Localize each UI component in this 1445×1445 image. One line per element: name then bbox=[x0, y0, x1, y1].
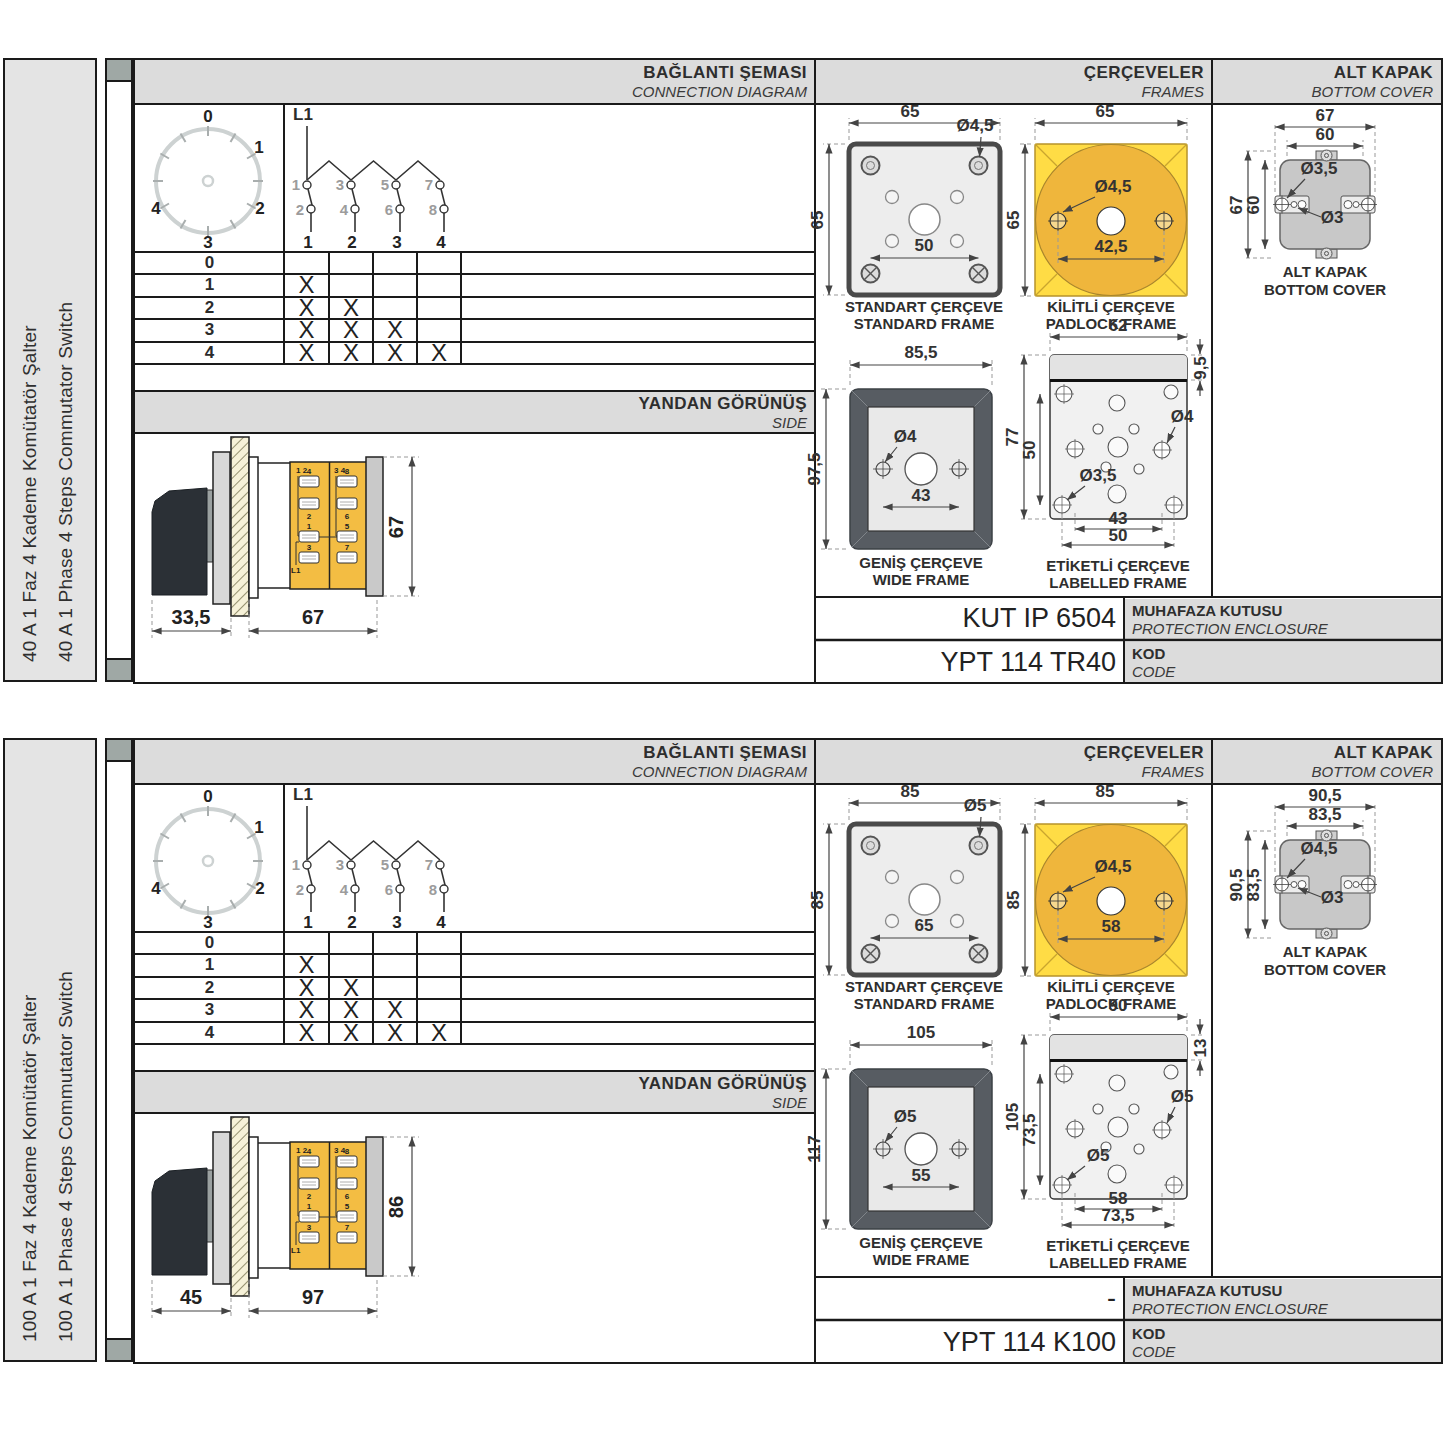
cov-hole2: Ø3 bbox=[1321, 888, 1344, 907]
term-label: 1 bbox=[307, 522, 312, 531]
cov-dim-w1: 67 bbox=[1316, 106, 1335, 125]
lab-dim-hv: 50 bbox=[1020, 441, 1039, 460]
std-dim-w: 85 bbox=[901, 782, 920, 801]
term-label: 5 bbox=[345, 522, 350, 531]
wide-caption-en: WIDE FRAME bbox=[873, 571, 970, 588]
contact-diagram: L1 1 3 5 bbox=[292, 785, 448, 932]
terminal-4: 4 bbox=[340, 201, 349, 218]
dim-handle: 33,5 bbox=[172, 606, 211, 628]
product-title-english: 40 A 1 Phase 4 Steps Commutator Switch bbox=[55, 302, 77, 662]
std-caption-en: STANDARD FRAME bbox=[854, 315, 995, 332]
pole-2: 2 bbox=[347, 233, 356, 252]
dial-label-4: 4 bbox=[151, 199, 161, 218]
pad-hole: Ø4,5 bbox=[1095, 177, 1132, 196]
lab-hole-r: Ø4 bbox=[1171, 407, 1194, 426]
wide-caption-tr: GENİŞ ÇERÇEVE bbox=[859, 1234, 982, 1251]
lab-dim-b2: 50 bbox=[1109, 526, 1128, 545]
bottom-cover-drawing: 90,5 83,5 90,5 83,5 Ø4,5 Ø3 ALT KAPAK BO… bbox=[1227, 786, 1386, 978]
product-sidebar: 100 A 1 Faz 4 Kademe Komütatör Şalter 10… bbox=[3, 738, 97, 1362]
terminal-7: 7 bbox=[425, 176, 433, 193]
contact-diagram: L1 1 3 5 bbox=[292, 105, 448, 252]
dial-label-2: 2 bbox=[255, 879, 264, 898]
technical-drawings: 0 1 2 3 4 L1 bbox=[135, 740, 1441, 1362]
lab-hole-b: Ø3,5 bbox=[1080, 466, 1117, 485]
term-label: 4 bbox=[307, 467, 312, 476]
cov-caption-en: BOTTOM COVER bbox=[1264, 281, 1386, 298]
std-caption-tr: STANDART ÇERÇEVE bbox=[845, 978, 1003, 995]
lab-hole-b: Ø5 bbox=[1087, 1146, 1110, 1165]
standard-frame-drawing: 65 Ø4,5 65 50 STANDART ÇERÇEVE STANDARD … bbox=[808, 102, 1003, 332]
std-dim-h: 85 bbox=[808, 891, 827, 910]
term-label: 7 bbox=[345, 1223, 350, 1232]
dial-label-0: 0 bbox=[203, 787, 212, 806]
side-feed-label: L1 bbox=[291, 566, 301, 575]
std-dim-inner: 65 bbox=[915, 916, 934, 935]
strip-square-top bbox=[107, 60, 131, 82]
cov-caption-tr: ALT KAPAK bbox=[1283, 263, 1368, 280]
wide-dim-h: 97,5 bbox=[805, 452, 824, 485]
terminal-2: 2 bbox=[296, 201, 304, 218]
lab-dim-w: 62 bbox=[1109, 316, 1128, 335]
wide-hole: Ø4 bbox=[894, 427, 917, 446]
datasheet-panel: BAĞLANTI ŞEMASI CONNECTION DIAGRAM ÇERÇE… bbox=[133, 58, 1443, 684]
strip-square-top bbox=[107, 740, 131, 762]
feed-label: L1 bbox=[293, 105, 313, 124]
side-view-drawing: 4 8 2 6 1 5 3 7 1 2 3 4 L1 bbox=[152, 1117, 419, 1318]
terminal-1: 1 bbox=[292, 176, 300, 193]
terminal-7: 7 bbox=[425, 856, 433, 873]
pad-dim-h: 85 bbox=[1004, 891, 1023, 910]
lab-caption-tr: ETİKETLİ ÇERÇEVE bbox=[1046, 1237, 1189, 1254]
std-hole: Ø5 bbox=[964, 796, 987, 815]
terminal-5: 5 bbox=[381, 856, 389, 873]
pad-caption-tr: KİLİTLİ ÇERÇEVE bbox=[1047, 298, 1175, 315]
lab-dim-w: 90 bbox=[1109, 996, 1128, 1015]
cov-dim-w2: 83,5 bbox=[1308, 805, 1341, 824]
lab-dim-band: 13 bbox=[1191, 1039, 1210, 1058]
term-label: 5 bbox=[345, 1202, 350, 1211]
term-label: 8 bbox=[345, 467, 350, 476]
corner-label-right: 3 4 bbox=[334, 466, 346, 475]
dial-label-4: 4 bbox=[151, 879, 161, 898]
term-label: 3 bbox=[307, 1223, 312, 1232]
side-feed-label: L1 bbox=[291, 1246, 301, 1255]
terminal-4: 4 bbox=[340, 881, 349, 898]
pole-1: 1 bbox=[303, 233, 312, 252]
wide-caption-tr: GENİŞ ÇERÇEVE bbox=[859, 554, 982, 571]
lab-hole-r: Ø5 bbox=[1171, 1087, 1194, 1106]
standard-frame-drawing: 85 Ø5 85 65 STANDART ÇERÇEVE STANDARD FR… bbox=[808, 782, 1003, 1012]
dial-label-3: 3 bbox=[203, 913, 212, 932]
padlock-frame-drawing: 65 65 Ø4,5 42,5 KİLİTLİ ÇERÇEVE PADLOCK … bbox=[1004, 102, 1187, 332]
padlock-frame-drawing: 85 85 Ø4,5 58 KİLİTLİ ÇERÇEVE PADLOCK FR… bbox=[1004, 782, 1187, 1012]
std-caption-tr: STANDART ÇERÇEVE bbox=[845, 298, 1003, 315]
product-section-0: 40 A 1 Faz 4 Kademe Komütatör Şalter 40 … bbox=[0, 58, 1445, 684]
rotary-dial: 0 1 2 3 4 bbox=[151, 107, 264, 252]
dim-height: 86 bbox=[385, 1196, 407, 1218]
pole-3: 3 bbox=[392, 233, 401, 252]
labelled-frame-drawing: 62 9,5 77 50 Ø4 Ø3,5 43 50 ETİKETLİ ÇERÇ… bbox=[1003, 316, 1210, 591]
product-sidebar: 40 A 1 Faz 4 Kademe Komütatör Şalter 40 … bbox=[3, 58, 97, 682]
wide-dim-inner: 55 bbox=[912, 1166, 931, 1185]
terminal-6: 6 bbox=[385, 881, 393, 898]
wide-dim-inner: 43 bbox=[912, 486, 931, 505]
pole-4: 4 bbox=[436, 233, 446, 252]
wide-dim-w: 85,5 bbox=[904, 343, 937, 362]
term-label: 4 bbox=[307, 1147, 312, 1156]
wide-frame-drawing: 105 117 Ø5 55 GENİŞ ÇERÇEVE WIDE FRAME bbox=[805, 1023, 992, 1268]
terminal-8: 8 bbox=[429, 881, 437, 898]
cov-hole1: Ø4,5 bbox=[1301, 839, 1338, 858]
terminal-1: 1 bbox=[292, 856, 300, 873]
side-view-drawing: 4 8 2 6 1 5 3 7 1 2 3 4 L1 bbox=[152, 437, 419, 638]
lab-dim-b2: 73,5 bbox=[1101, 1206, 1134, 1225]
pad-hole: Ø4,5 bbox=[1095, 857, 1132, 876]
datasheet-panel: BAĞLANTI ŞEMASI CONNECTION DIAGRAM ÇERÇE… bbox=[133, 738, 1443, 1364]
term-label: 6 bbox=[345, 1192, 350, 1201]
product-title-english: 100 A 1 Phase 4 Steps Commutator Switch bbox=[55, 971, 77, 1342]
technical-drawings: 0 1 2 3 4 L1 bbox=[135, 60, 1441, 682]
term-label: 6 bbox=[345, 512, 350, 521]
dim-body: 97 bbox=[302, 1286, 324, 1308]
std-caption-en: STANDARD FRAME bbox=[854, 995, 995, 1012]
dial-label-2: 2 bbox=[255, 199, 264, 218]
wide-frame-drawing: 85,5 97,5 Ø4 43 GENİŞ ÇERÇEVE WIDE FRAME bbox=[805, 343, 992, 588]
term-label: 8 bbox=[345, 1147, 350, 1156]
binding-strip bbox=[105, 738, 133, 1362]
pad-dim-inner: 58 bbox=[1102, 917, 1121, 936]
std-dim-h: 65 bbox=[808, 211, 827, 230]
term-label: 3 bbox=[307, 543, 312, 552]
pole-4: 4 bbox=[436, 913, 446, 932]
wide-hole: Ø5 bbox=[894, 1107, 917, 1126]
lab-dim-hv: 73,5 bbox=[1020, 1113, 1039, 1146]
binding-strip bbox=[105, 58, 133, 682]
pad-dim-inner: 42,5 bbox=[1094, 237, 1127, 256]
terminal-2: 2 bbox=[296, 881, 304, 898]
cov-caption-tr: ALT KAPAK bbox=[1283, 943, 1368, 960]
labelled-frame-drawing: 90 13 105 73,5 Ø5 Ø5 58 73,5 ETİKETLİ ÇE… bbox=[1003, 996, 1210, 1271]
cov-hole1: Ø3,5 bbox=[1301, 159, 1338, 178]
terminal-8: 8 bbox=[429, 201, 437, 218]
dial-label-0: 0 bbox=[203, 107, 212, 126]
std-dim-w: 65 bbox=[901, 102, 920, 121]
term-label: 7 bbox=[345, 543, 350, 552]
dim-body: 67 bbox=[302, 606, 324, 628]
cov-dim-w2: 60 bbox=[1316, 125, 1335, 144]
cov-dim-h2: 83,5 bbox=[1244, 868, 1263, 901]
terminal-6: 6 bbox=[385, 201, 393, 218]
corner-label-left: 1 2 bbox=[296, 1146, 308, 1155]
rotary-dial: 0 1 2 3 4 bbox=[151, 787, 264, 932]
lab-caption-en: LABELLED FRAME bbox=[1049, 574, 1187, 591]
dial-label-1: 1 bbox=[254, 818, 263, 837]
dim-handle: 45 bbox=[180, 1286, 202, 1308]
wide-dim-w: 105 bbox=[907, 1023, 935, 1042]
terminal-3: 3 bbox=[336, 856, 344, 873]
wide-dim-h: 117 bbox=[805, 1135, 824, 1162]
lab-caption-en: LABELLED FRAME bbox=[1049, 1254, 1187, 1271]
pad-caption-tr: KİLİTLİ ÇERÇEVE bbox=[1047, 978, 1175, 995]
pole-2: 2 bbox=[347, 913, 356, 932]
pad-dim-w: 65 bbox=[1096, 102, 1115, 121]
term-label: 2 bbox=[307, 1192, 312, 1201]
corner-label-right: 3 4 bbox=[334, 1146, 346, 1155]
strip-square-bottom bbox=[107, 1338, 131, 1360]
dim-height: 67 bbox=[385, 516, 407, 538]
cov-caption-en: BOTTOM COVER bbox=[1264, 961, 1386, 978]
bottom-cover-drawing: 67 60 67 60 Ø3,5 Ø3 ALT KAPAK BOTTOM COV… bbox=[1227, 106, 1386, 298]
lab-caption-tr: ETİKETLİ ÇERÇEVE bbox=[1046, 557, 1189, 574]
lab-dim-band: 9,5 bbox=[1191, 356, 1210, 380]
terminal-3: 3 bbox=[336, 176, 344, 193]
cov-hole2: Ø3 bbox=[1321, 208, 1344, 227]
dial-label-3: 3 bbox=[203, 233, 212, 252]
strip-square-bottom bbox=[107, 658, 131, 680]
catalog-page: { "sections": [ { "sidebar": {"tr": "40 … bbox=[0, 0, 1445, 1445]
pad-dim-w: 85 bbox=[1096, 782, 1115, 801]
product-title-turkish: 40 A 1 Faz 4 Kademe Komütatör Şalter bbox=[19, 325, 41, 662]
pad-dim-h: 65 bbox=[1004, 211, 1023, 230]
corner-label-left: 1 2 bbox=[296, 466, 308, 475]
std-dim-inner: 50 bbox=[915, 236, 934, 255]
feed-label: L1 bbox=[293, 785, 313, 804]
term-label: 2 bbox=[307, 512, 312, 521]
product-section-1: 100 A 1 Faz 4 Kademe Komütatör Şalter 10… bbox=[0, 738, 1445, 1364]
dial-label-1: 1 bbox=[254, 138, 263, 157]
cov-dim-w1: 90,5 bbox=[1308, 786, 1341, 805]
pole-1: 1 bbox=[303, 913, 312, 932]
terminal-5: 5 bbox=[381, 176, 389, 193]
wide-caption-en: WIDE FRAME bbox=[873, 1251, 970, 1268]
cov-dim-h2: 60 bbox=[1244, 196, 1263, 215]
std-hole: Ø4,5 bbox=[957, 116, 994, 135]
product-title-turkish: 100 A 1 Faz 4 Kademe Komütatör Şalter bbox=[19, 995, 41, 1343]
pole-3: 3 bbox=[392, 913, 401, 932]
term-label: 1 bbox=[307, 1202, 312, 1211]
